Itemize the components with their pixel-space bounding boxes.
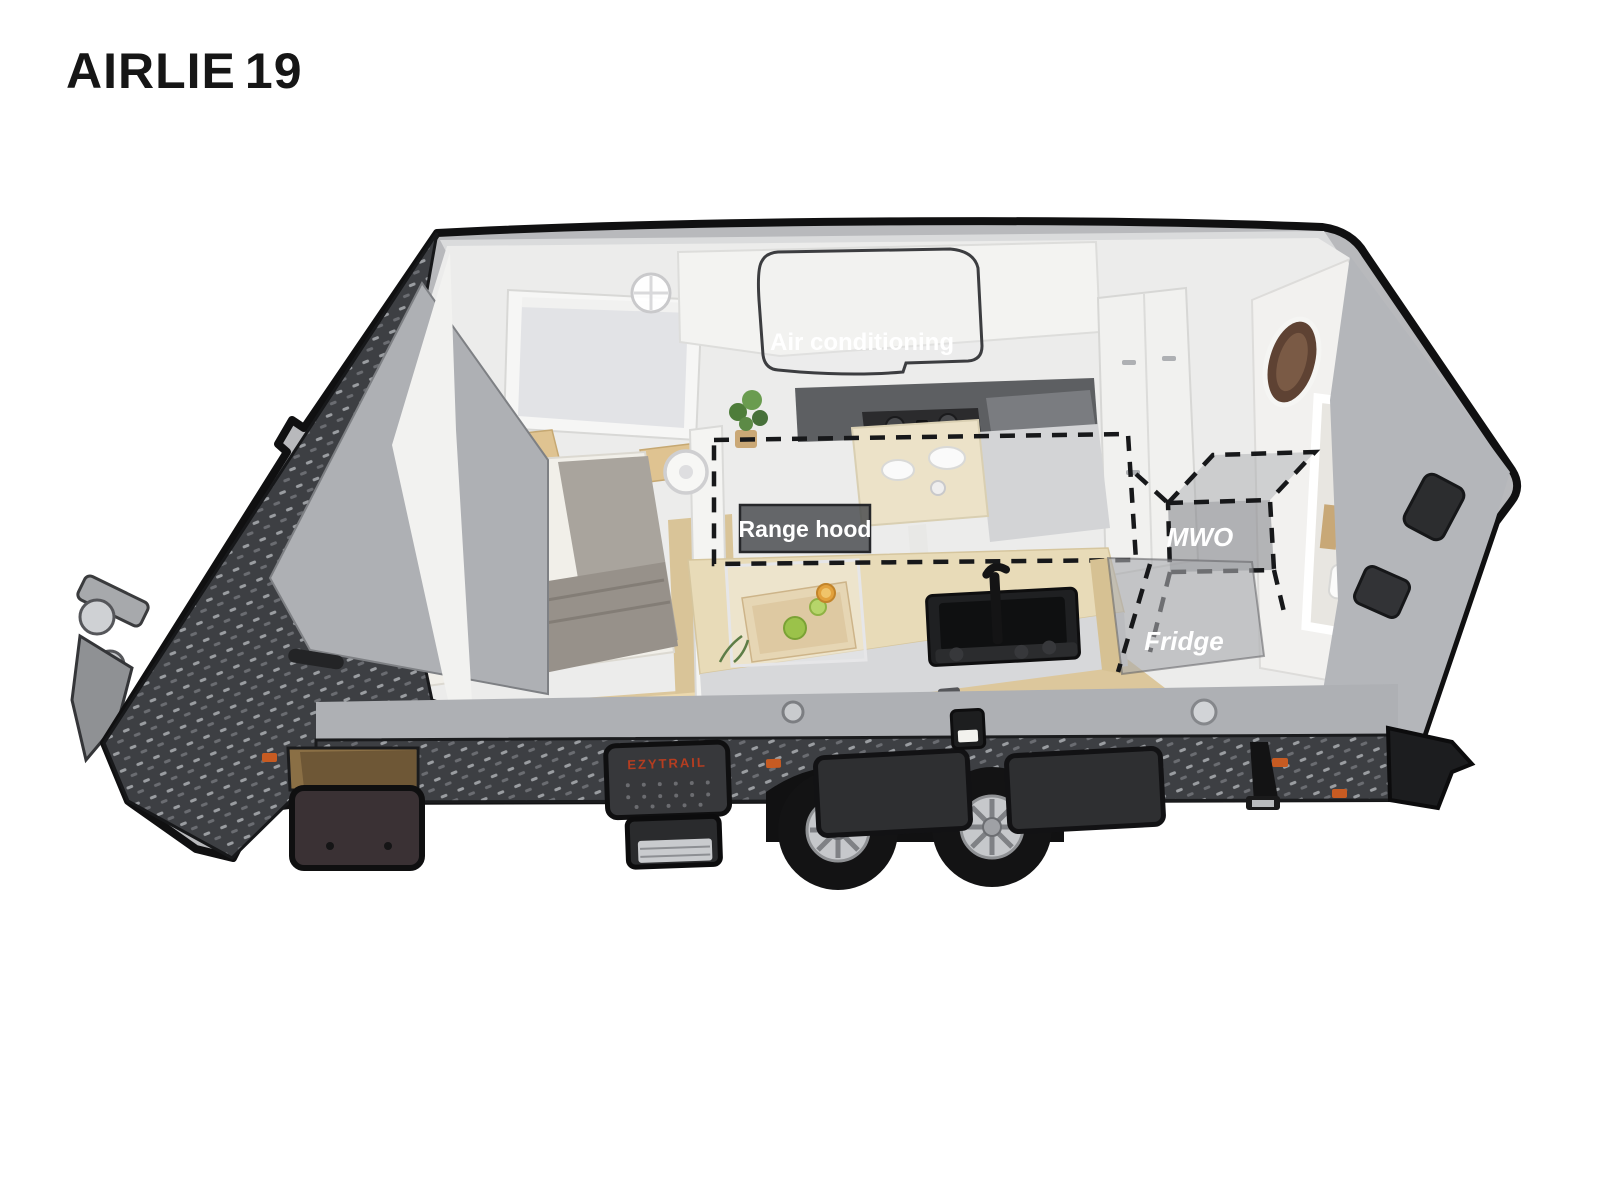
wall-fan-icon [665, 451, 707, 493]
range-hood-label: Range hood [739, 516, 872, 542]
reflector [262, 753, 277, 762]
entry-step: EZYTRAIL [605, 742, 731, 868]
glass [931, 481, 945, 495]
porch-light [951, 709, 985, 749]
airlie19-cutaway-page: AIRLIE19 [0, 0, 1600, 1200]
fridge-panel [1090, 558, 1264, 674]
wheel-guard-panel [815, 750, 971, 836]
lime [784, 617, 806, 639]
rear-bumper-bracket [1388, 728, 1472, 808]
mwo-label: MWO [1167, 522, 1233, 552]
ceiling-fan-icon [632, 274, 670, 312]
plate [882, 460, 914, 480]
stove-glass-cover [720, 560, 866, 666]
gas-bottle-top [80, 600, 114, 634]
dinette-seat [978, 424, 1110, 542]
caravan-cutaway-illustration: EZYTRAIL A home for your adventures [0, 0, 1600, 1200]
range-hood-label-box: Range hood [739, 505, 872, 552]
step-logo-text: EZYTRAIL [627, 755, 707, 773]
hatch-door [292, 788, 422, 868]
filler-cap [1192, 700, 1216, 724]
open-storage-hatch [288, 748, 422, 868]
air-conditioning-label: Air conditioning [770, 329, 954, 356]
fridge-label: Fridge [1144, 626, 1223, 656]
